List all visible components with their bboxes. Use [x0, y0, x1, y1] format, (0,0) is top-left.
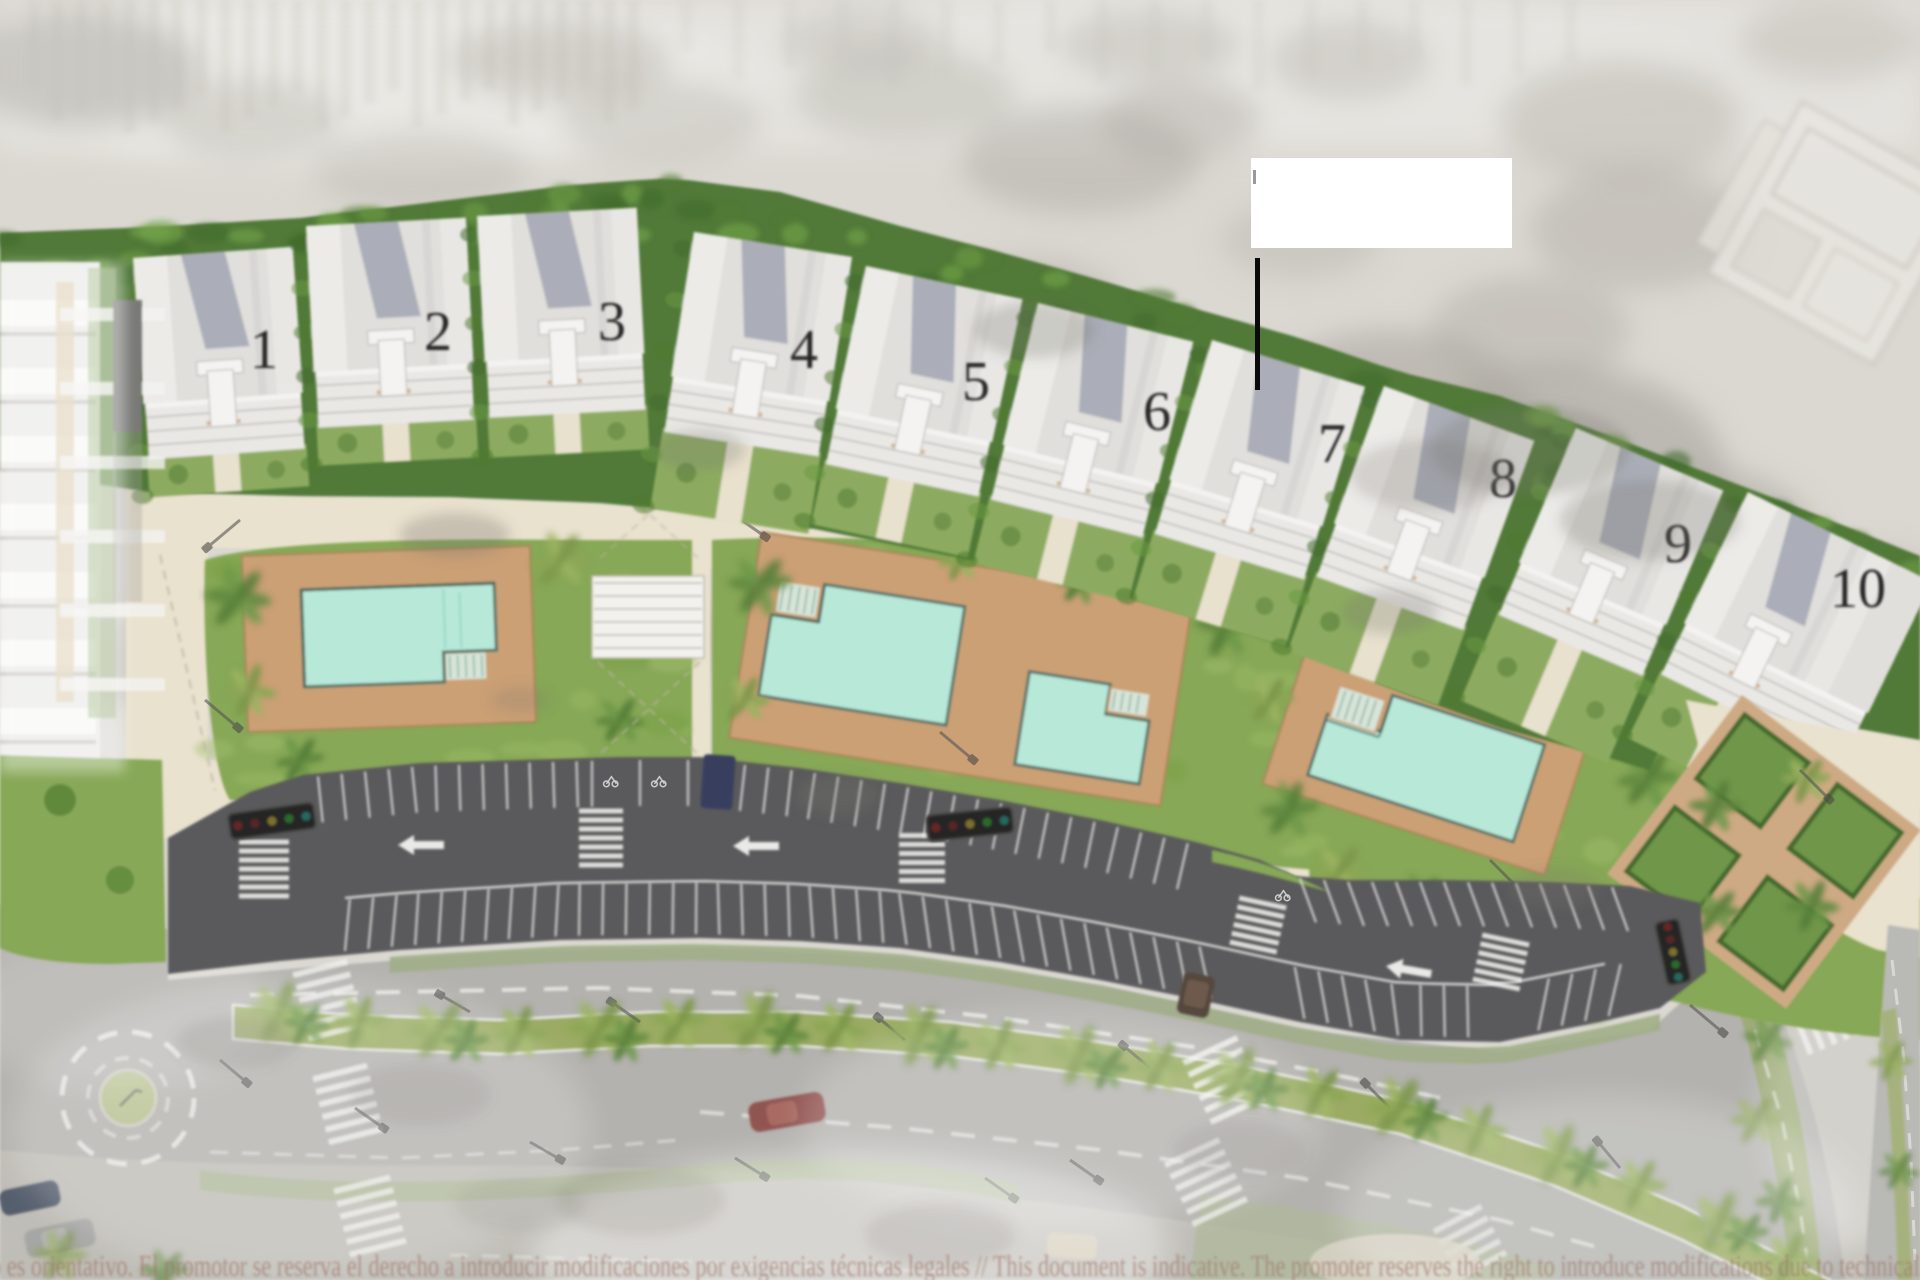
svg-text:o es orientativo. El promotor: o es orientativo. El promotor se reserva…	[0, 1248, 1920, 1280]
